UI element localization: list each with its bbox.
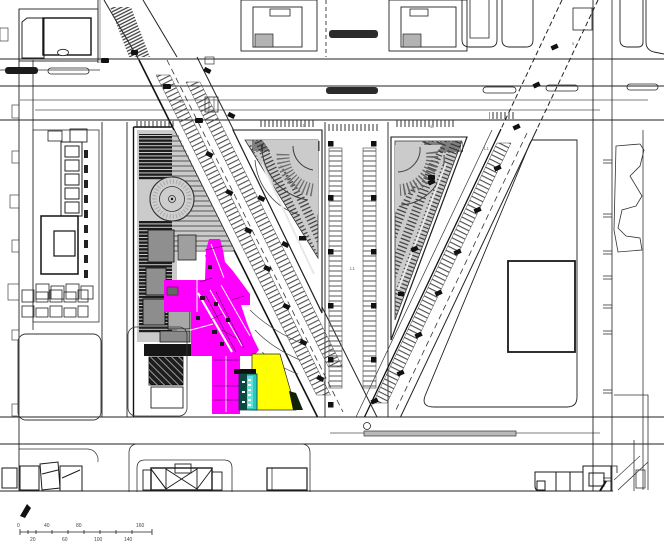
svg-text:80: 80 bbox=[76, 523, 82, 529]
svg-text:L1: L1 bbox=[300, 123, 306, 128]
svg-text:60: 60 bbox=[62, 537, 68, 543]
svg-text:160: 160 bbox=[136, 523, 145, 529]
svg-text:100: 100 bbox=[94, 537, 103, 543]
svg-text:AV: AV bbox=[178, 99, 184, 104]
svg-text:140: 140 bbox=[124, 537, 133, 543]
svg-text:L1: L1 bbox=[484, 146, 490, 151]
svg-text:L1: L1 bbox=[350, 266, 356, 271]
svg-text:0: 0 bbox=[17, 523, 20, 529]
svg-text:40: 40 bbox=[44, 523, 50, 529]
svg-text:20: 20 bbox=[30, 537, 36, 543]
